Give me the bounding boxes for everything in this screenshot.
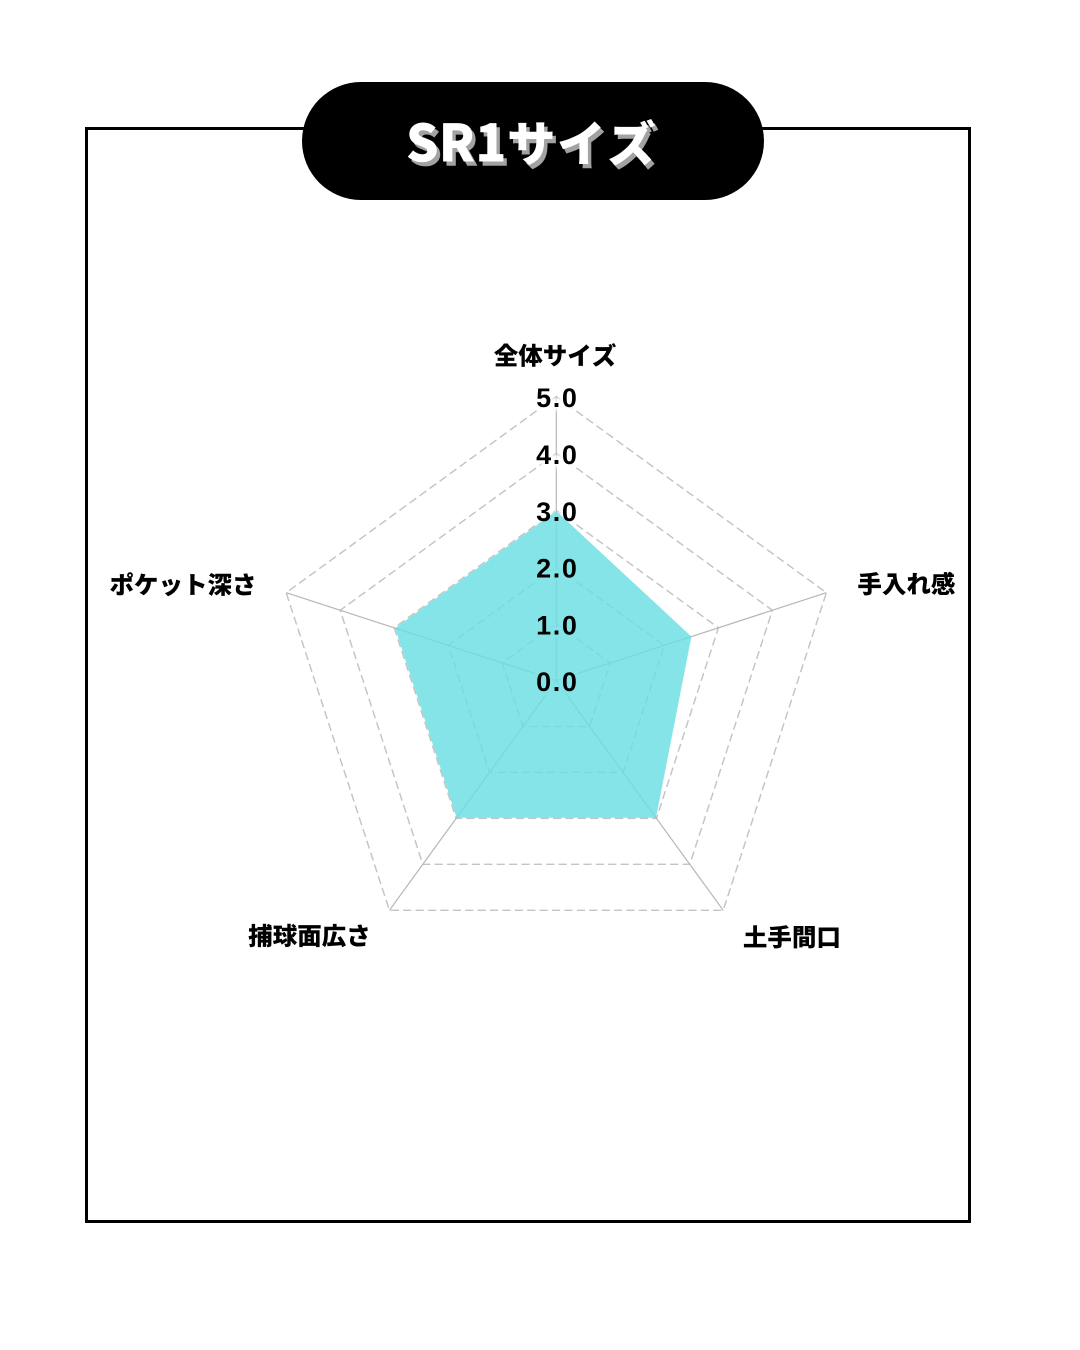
svg-text:1.0: 1.0 (536, 610, 578, 640)
svg-text:5.0: 5.0 (536, 383, 578, 413)
svg-text:3.0: 3.0 (536, 497, 578, 527)
svg-text:2.0: 2.0 (536, 554, 578, 584)
svg-text:4.0: 4.0 (536, 440, 578, 470)
svg-text:0.0: 0.0 (536, 667, 578, 697)
